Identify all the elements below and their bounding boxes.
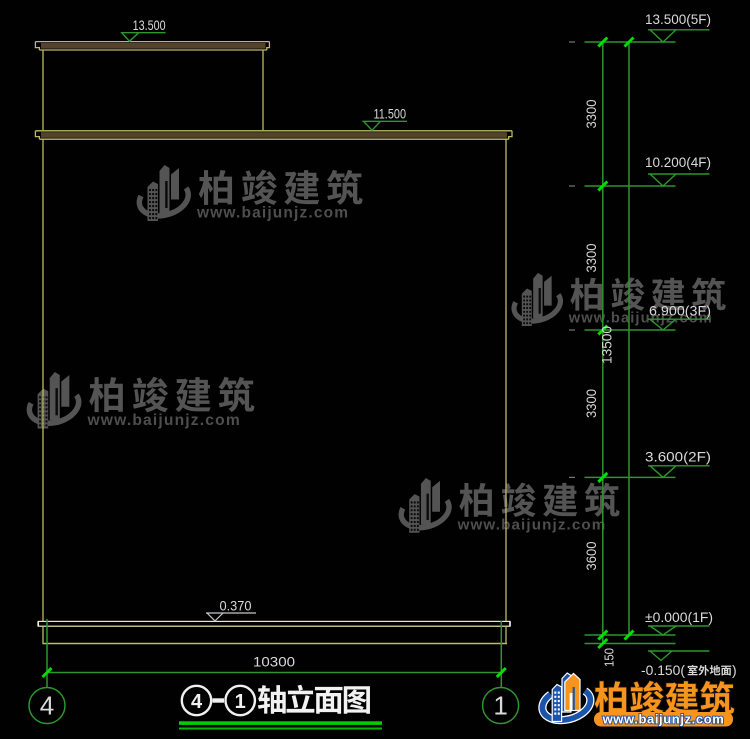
- svg-text:1: 1: [493, 691, 507, 721]
- svg-text:±0.000(1F): ±0.000(1F): [645, 609, 713, 625]
- svg-text:3300: 3300: [584, 389, 599, 418]
- svg-text:13500: 13500: [600, 326, 615, 364]
- svg-text:13.500: 13.500: [133, 17, 166, 33]
- svg-text:0.370: 0.370: [220, 599, 252, 614]
- svg-text:1: 1: [235, 691, 246, 713]
- svg-text:11.500: 11.500: [374, 106, 407, 122]
- svg-text:4: 4: [191, 691, 203, 713]
- svg-text:3300: 3300: [584, 244, 599, 273]
- svg-text:www.baijunjz.com: www.baijunjz.com: [602, 712, 725, 727]
- svg-text:10.200(4F): 10.200(4F): [645, 154, 711, 170]
- svg-text:6.900(3F): 6.900(3F): [649, 303, 711, 319]
- svg-text:3.600(2F): 3.600(2F): [645, 449, 711, 465]
- svg-text:): ): [732, 662, 737, 678]
- svg-text:10300: 10300: [253, 654, 295, 670]
- svg-text:150: 150: [602, 648, 617, 667]
- svg-text:4: 4: [40, 691, 54, 721]
- svg-text:-0.150(: -0.150(: [641, 662, 685, 678]
- svg-text:3600: 3600: [584, 542, 599, 571]
- svg-text:13.500(5F): 13.500(5F): [645, 11, 711, 27]
- svg-text:3300: 3300: [584, 100, 599, 129]
